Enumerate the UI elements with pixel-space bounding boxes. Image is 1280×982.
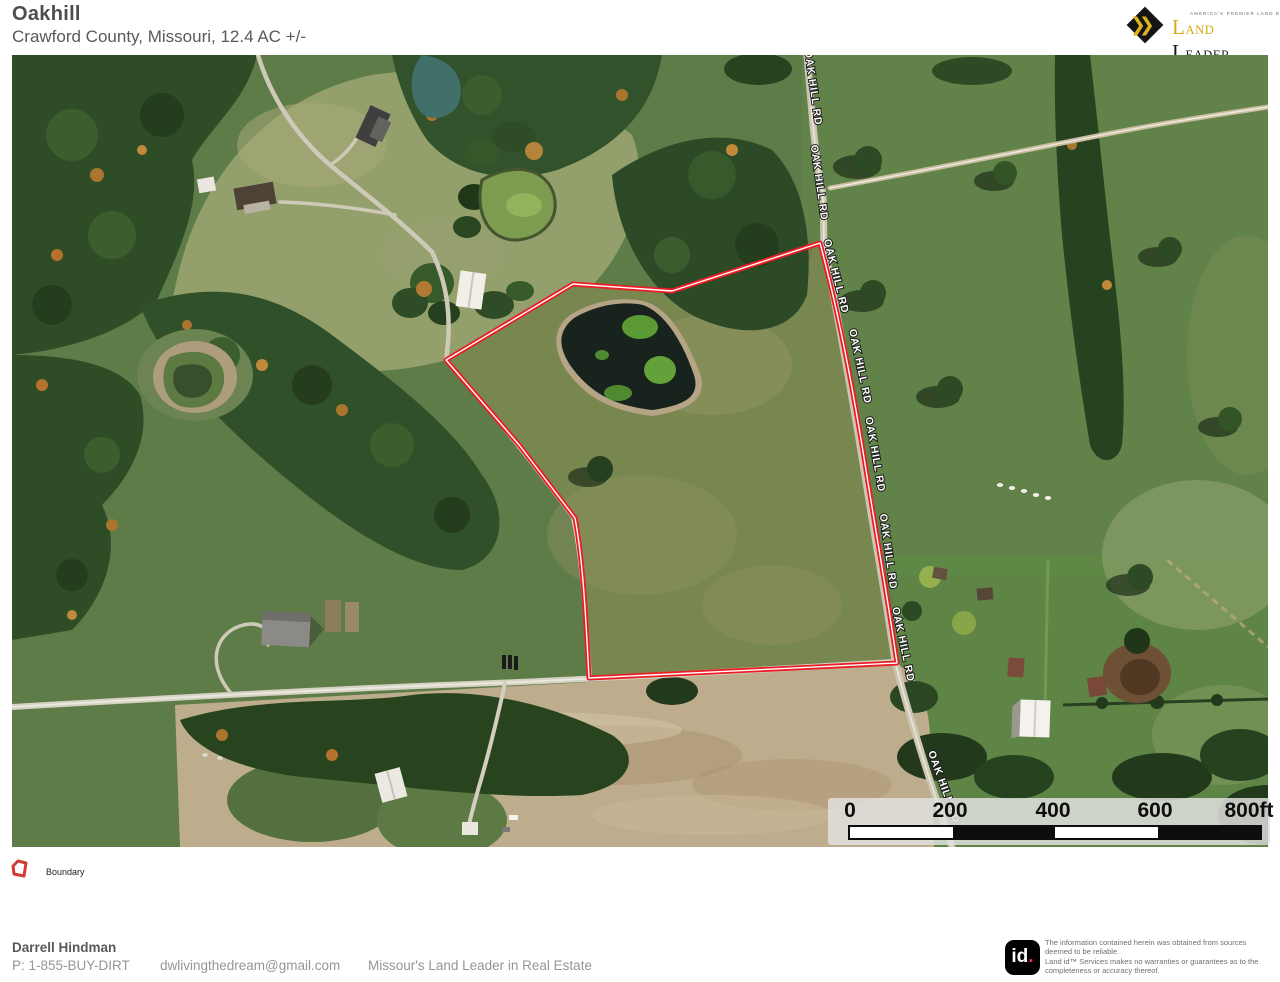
land-id-logo: id. bbox=[1005, 940, 1040, 975]
scale-end-label: 800ft bbox=[1224, 799, 1273, 823]
disclaimer-line: The information contained herein was obt… bbox=[1045, 938, 1275, 956]
scale-bar: 0 200 400 600 800ft bbox=[828, 798, 1270, 845]
agent-email[interactable]: dwlivingthedream@gmail.com bbox=[160, 958, 340, 973]
boundary-icon bbox=[10, 858, 30, 880]
scale-tick: 600 bbox=[1137, 799, 1172, 823]
disclaimer-line: Land id™ Services makes no warranties or… bbox=[1045, 957, 1275, 975]
legend: Boundary bbox=[10, 858, 170, 886]
scale-tick: 400 bbox=[1035, 799, 1070, 823]
scale-tick: 0 bbox=[844, 799, 856, 823]
report-page: Oakhill Crawford County, Missouri, 12.4 … bbox=[0, 0, 1280, 982]
agent-name: Darrell Hindman bbox=[12, 940, 116, 955]
agent-phone: P: 1-855-BUY-DIRT bbox=[12, 958, 130, 973]
landleader-logo: ❯❯ AMERICA'S PREMIER LAND BROKERS LandLe… bbox=[1122, 3, 1272, 49]
page-title: Oakhill bbox=[12, 3, 81, 26]
chevron-right-icon: ❯❯ bbox=[1130, 14, 1148, 36]
legend-boundary-label: Boundary bbox=[46, 867, 85, 877]
scale-bar-segments bbox=[848, 825, 1262, 840]
page-subtitle: Crawford County, Missouri, 12.4 AC +/- bbox=[12, 27, 306, 47]
brand-word-land: Land bbox=[1172, 16, 1214, 41]
scale-tick: 200 bbox=[932, 799, 967, 823]
logo-dot: . bbox=[1028, 946, 1033, 967]
disclaimer-text: The information contained herein was obt… bbox=[1045, 938, 1275, 976]
aerial-map: OAK HILL RD OAK HILL RD OAK HILL RD OAK … bbox=[12, 55, 1268, 847]
agent-slogan: Missour's Land Leader in Real Estate bbox=[368, 958, 592, 973]
